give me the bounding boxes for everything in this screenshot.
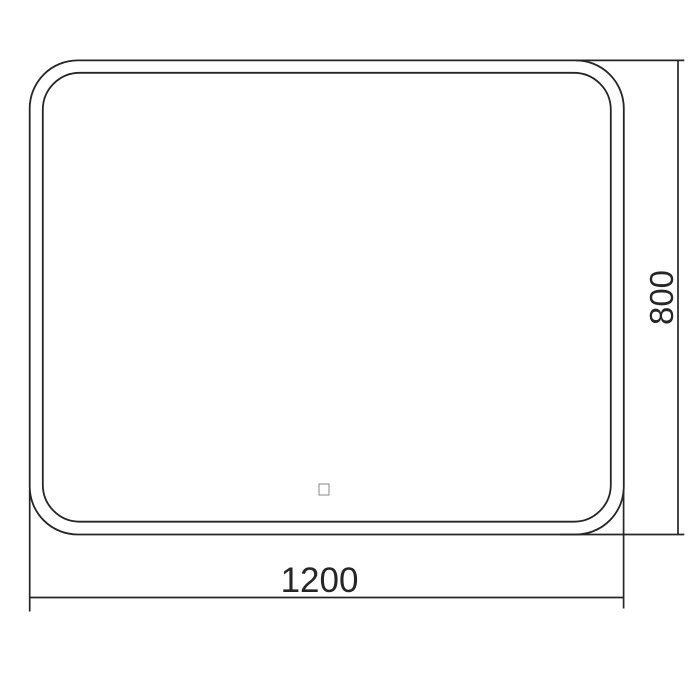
svg-text:1200: 1200 <box>281 561 359 600</box>
svg-text:800: 800 <box>643 270 680 325</box>
